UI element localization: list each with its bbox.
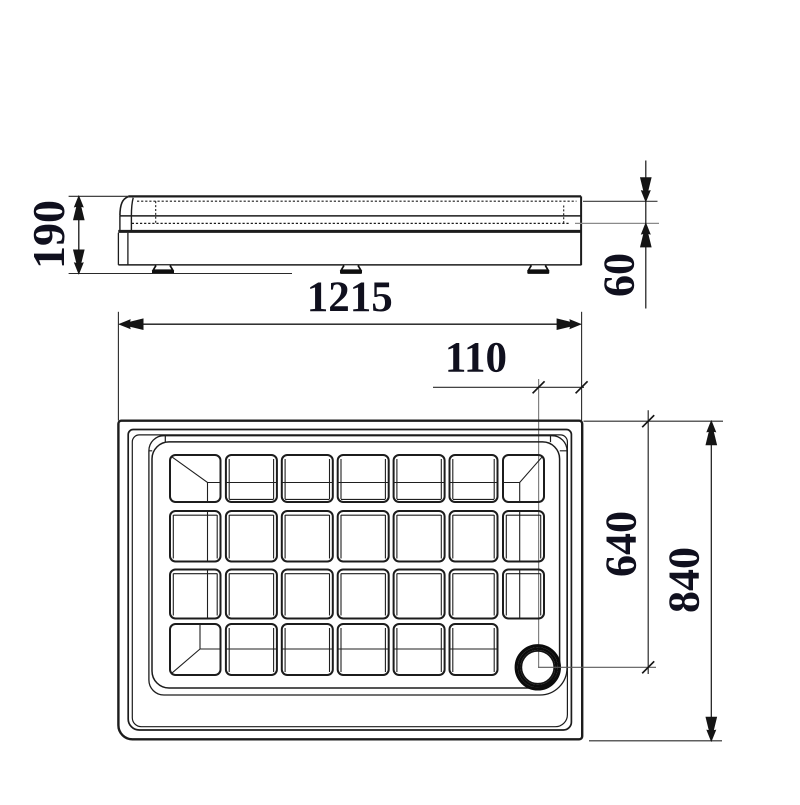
- svg-text:840: 840: [660, 547, 709, 613]
- svg-text:60: 60: [595, 253, 644, 297]
- svg-text:190: 190: [23, 200, 74, 269]
- svg-text:1215: 1215: [307, 274, 393, 321]
- svg-text:640: 640: [597, 511, 646, 577]
- svg-text:110: 110: [445, 335, 507, 382]
